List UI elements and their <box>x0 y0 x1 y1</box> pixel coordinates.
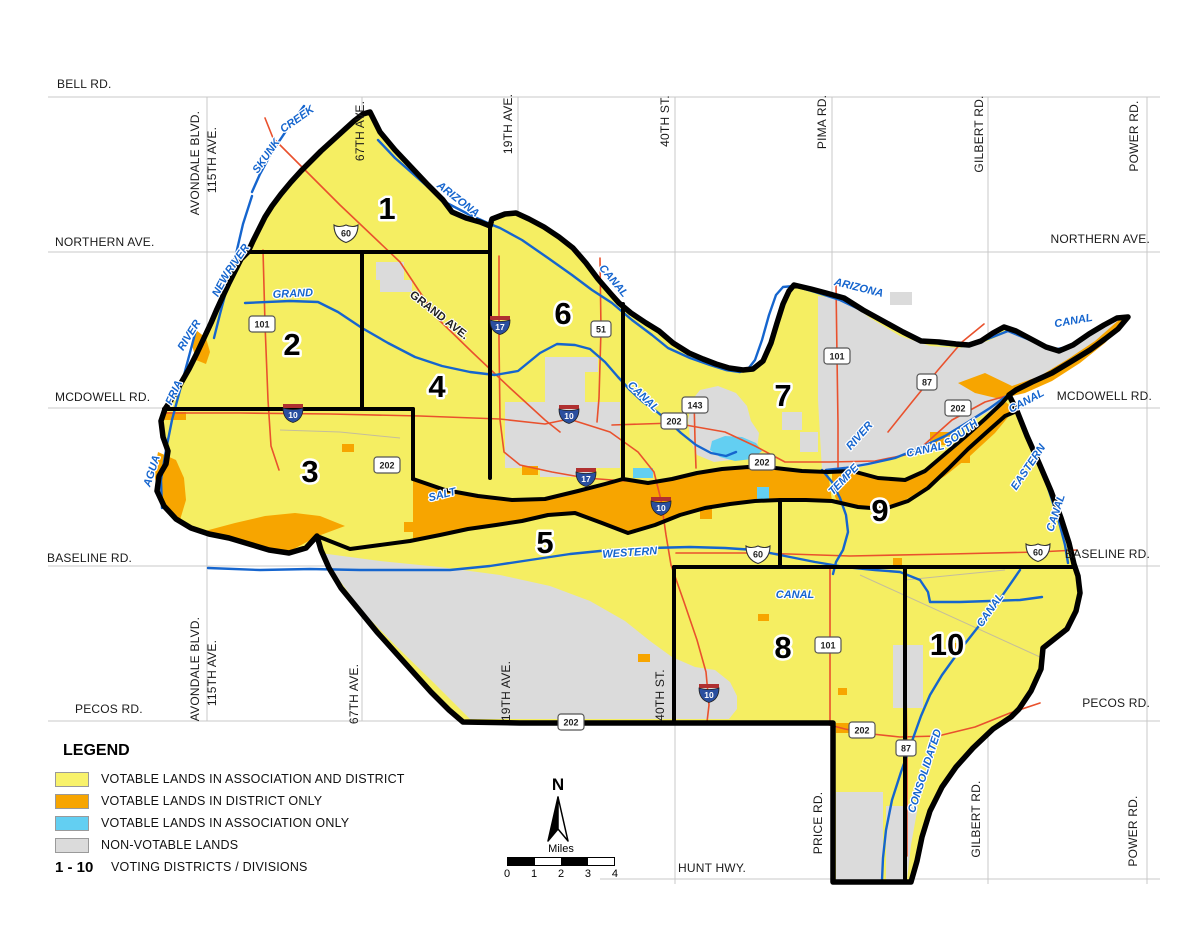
orange-patch <box>342 444 354 452</box>
legend: LEGEND VOTABLE LANDS IN ASSOCIATION AND … <box>55 742 405 878</box>
street-label-115th-ave: 115TH AVE. <box>205 127 219 193</box>
svg-text:60: 60 <box>341 229 351 239</box>
svg-text:17: 17 <box>495 322 505 332</box>
legend-districts-label: VOTING DISTRICTS / DIVISIONS <box>111 860 308 874</box>
road-label-mcdowell-rd: MCDOWELL RD. <box>55 390 150 404</box>
legend-swatch-votable-association-and-district <box>55 772 89 787</box>
street-label-gilbert-rd: GILBERT RD. <box>972 95 986 172</box>
shield-s-202: 202 <box>374 457 400 473</box>
street-label-power-rd: POWER RD. <box>1127 100 1141 171</box>
svg-text:10: 10 <box>288 410 298 420</box>
shield-s-51: 51 <box>591 321 611 337</box>
road-label-bell-rd: BELL RD. <box>57 77 112 91</box>
cyan-patch <box>633 468 653 478</box>
legend-districts-row: 1 - 10 VOTING DISTRICTS / DIVISIONS <box>55 856 405 878</box>
district-label-7: 7 <box>774 378 791 413</box>
street-label-40th-st: 40TH ST. <box>653 669 667 721</box>
svg-text:60: 60 <box>753 550 763 560</box>
svg-text:202: 202 <box>379 461 394 471</box>
legend-item-votable-association-only: VOTABLE LANDS IN ASSOCIATION ONLY <box>55 812 405 834</box>
street-label-avondale-blvd: AVONDALE BLVD. <box>188 617 202 721</box>
gray-patch <box>380 280 412 292</box>
street-label-price-rd: PRICE RD. <box>811 792 825 854</box>
legend-label-votable-district-only: VOTABLE LANDS IN DISTRICT ONLY <box>101 794 322 808</box>
district-label-6: 6 <box>554 296 571 331</box>
svg-text:87: 87 <box>901 744 911 754</box>
gray-patch <box>782 412 802 430</box>
gray-patch <box>890 292 912 305</box>
legend-item-non-votable: NON-VOTABLE LANDS <box>55 834 405 856</box>
svg-text:101: 101 <box>820 641 835 651</box>
svg-text:202: 202 <box>854 726 869 736</box>
shield-s-101: 101 <box>824 348 850 364</box>
svg-text:17: 17 <box>581 474 591 484</box>
svg-text:60: 60 <box>1033 548 1043 558</box>
legend-item-votable-association-and-district: VOTABLE LANDS IN ASSOCIATION AND DISTRIC… <box>55 768 405 790</box>
svg-text:101: 101 <box>254 320 269 330</box>
legend-swatch-votable-association-only <box>55 816 89 831</box>
road-label-northern-ave: NORTHERN AVE. <box>55 235 155 249</box>
district-label-5: 5 <box>536 525 553 560</box>
svg-text:101: 101 <box>829 352 844 362</box>
svg-text:10: 10 <box>564 411 574 421</box>
north-arrow: N <box>536 775 580 850</box>
svg-text:202: 202 <box>563 718 578 728</box>
shield-s-87: 87 <box>896 740 916 756</box>
scale-bar: Miles 0 1 2 3 4 <box>496 843 626 880</box>
district-label-8: 8 <box>774 630 791 665</box>
street-label-67th-ave: 67TH AVE. <box>353 101 367 161</box>
legend-swatch-votable-district-only <box>55 794 89 809</box>
district-label-9: 9 <box>871 493 888 528</box>
legend-item-votable-district-only: VOTABLE LANDS IN DISTRICT ONLY <box>55 790 405 812</box>
road-label-hunt-hwy: HUNT HWY. <box>678 861 746 875</box>
orange-patch <box>838 688 847 695</box>
shield-s-202: 202 <box>945 400 971 416</box>
road-label-mcdowell-rd: MCDOWELL RD. <box>1057 389 1152 403</box>
road-label-pecos-rd: PECOS RD. <box>75 702 143 716</box>
shield-s-101: 101 <box>249 316 275 332</box>
shield-s-202: 202 <box>749 454 775 470</box>
gray-tail-west <box>836 792 883 880</box>
orange-patch <box>893 558 902 566</box>
svg-text:10: 10 <box>656 503 666 513</box>
shield-s-143: 143 <box>682 397 708 413</box>
orange-patch <box>700 489 712 519</box>
svg-text:10: 10 <box>704 690 714 700</box>
water-label-canal: CANAL <box>776 589 815 601</box>
district-label-2: 2 <box>283 327 300 362</box>
street-label-avondale-blvd: AVONDALE BLVD. <box>188 111 202 215</box>
shield-s-202: 202 <box>849 722 875 738</box>
north-label: N <box>536 775 580 795</box>
orange-patch <box>758 614 769 621</box>
legend-districts-range: 1 - 10 <box>55 859 99 876</box>
svg-text:202: 202 <box>754 458 769 468</box>
district-label-1: 1 <box>378 191 395 226</box>
street-label-40th-st: 40TH ST. <box>658 95 672 147</box>
voting-districts-map-page: 6060601717101010105114310110110120220220… <box>0 0 1200 927</box>
legend-label-votable-association-only: VOTABLE LANDS IN ASSOCIATION ONLY <box>101 816 349 830</box>
svg-text:202: 202 <box>950 404 965 414</box>
gray-patch <box>376 262 404 280</box>
street-label-19th-ave: 19TH AVE. <box>499 661 513 721</box>
orange-patch <box>638 654 650 662</box>
svg-text:87: 87 <box>922 378 932 388</box>
street-label-gilbert-rd: GILBERT RD. <box>969 780 983 857</box>
district-label-4: 4 <box>428 369 446 404</box>
cyan-patch <box>757 487 769 499</box>
legend-heading: LEGEND <box>63 742 405 760</box>
road-label-baseline-rd: BASELINE RD. <box>47 551 132 565</box>
road-label-pecos-rd: PECOS RD. <box>1082 696 1150 710</box>
gray-patch <box>893 645 923 708</box>
legend-label-votable-association-and-district: VOTABLE LANDS IN ASSOCIATION AND DISTRIC… <box>101 772 405 786</box>
road-label-baseline-rd: BASELINE RD. <box>1065 547 1150 561</box>
district-label-3: 3 <box>301 454 318 489</box>
gray-patch <box>800 432 818 452</box>
svg-text:51: 51 <box>596 325 606 335</box>
shield-s-202: 202 <box>661 413 687 429</box>
legend-label-non-votable: NON-VOTABLE LANDS <box>101 838 238 852</box>
scale-unit-label: Miles <box>496 843 626 855</box>
water-label-grand: GRAND <box>272 287 313 301</box>
scale-bar-graphic <box>507 857 615 866</box>
shield-s-101: 101 <box>815 637 841 653</box>
street-label-115th-ave: 115TH AVE. <box>205 640 219 706</box>
legend-swatch-non-votable <box>55 838 89 853</box>
orange-patch <box>404 522 434 532</box>
street-label-power-rd: POWER RD. <box>1126 795 1140 866</box>
shield-s-87: 87 <box>917 374 937 390</box>
shield-s-202: 202 <box>558 714 584 730</box>
street-label-67th-ave: 67TH AVE. <box>347 664 361 724</box>
street-label-19th-ave: 19TH AVE. <box>501 94 515 154</box>
scale-ticks: 0 1 2 3 4 <box>504 868 618 880</box>
north-arrow-icon <box>536 795 580 845</box>
road-label-northern-ave: NORTHERN AVE. <box>1050 232 1150 246</box>
svg-text:143: 143 <box>687 401 702 411</box>
street-label-pima-rd: PIMA RD. <box>815 95 829 149</box>
svg-text:202: 202 <box>666 417 681 427</box>
district-label-10: 10 <box>930 627 964 662</box>
